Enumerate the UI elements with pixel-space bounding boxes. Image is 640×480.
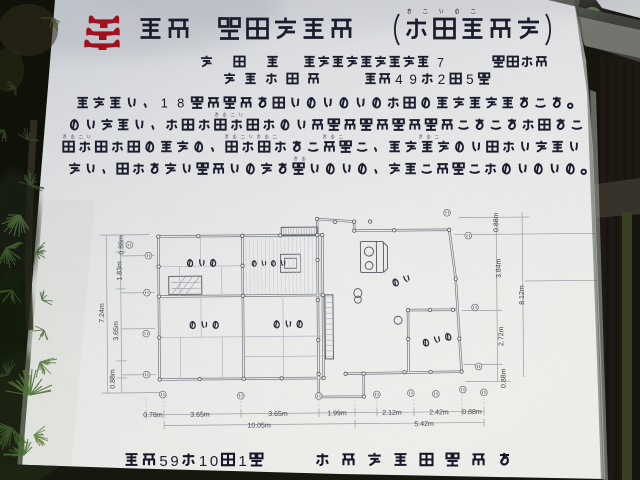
svg-text:8: 8 <box>177 96 184 111</box>
svg-text:5.42m: 5.42m <box>414 421 434 428</box>
svg-text:0.88m: 0.88m <box>493 212 500 232</box>
svg-text:1.83m: 1.83m <box>117 261 124 281</box>
svg-text:5: 5 <box>466 72 474 87</box>
svg-text:0.78m: 0.78m <box>143 412 163 419</box>
svg-text:1.99m: 1.99m <box>327 410 347 417</box>
svg-text:1: 1 <box>161 96 168 111</box>
svg-text:2: 2 <box>438 72 446 87</box>
svg-text:3.84m: 3.84m <box>496 258 503 278</box>
svg-text:4: 4 <box>395 72 403 87</box>
svg-text:3.65m: 3.65m <box>113 321 120 341</box>
svg-text:7.24m: 7.24m <box>99 303 106 323</box>
svg-text:2.72m: 2.72m <box>498 326 505 346</box>
svg-text:3.65m: 3.65m <box>268 411 288 418</box>
svg-text:0.88m: 0.88m <box>462 409 482 416</box>
svg-text:10.05m: 10.05m <box>247 422 271 429</box>
svg-text:2.12m: 2.12m <box>382 410 402 417</box>
svg-text:0.88m: 0.88m <box>110 369 117 389</box>
svg-text:7: 7 <box>437 56 444 70</box>
svg-text:0.88m: 0.88m <box>501 368 508 388</box>
svg-text:3.65m: 3.65m <box>190 412 210 419</box>
svg-text:0.88m: 0.88m <box>118 235 125 255</box>
svg-text:8.12m: 8.12m <box>519 285 526 305</box>
svg-text:9: 9 <box>409 72 417 87</box>
svg-text:5: 5 <box>159 453 167 470</box>
svg-text:0: 0 <box>210 453 218 470</box>
svg-text:1: 1 <box>238 453 246 470</box>
svg-text:9: 9 <box>170 453 178 470</box>
svg-text:2.42m: 2.42m <box>429 409 449 416</box>
svg-text:1: 1 <box>199 453 207 470</box>
